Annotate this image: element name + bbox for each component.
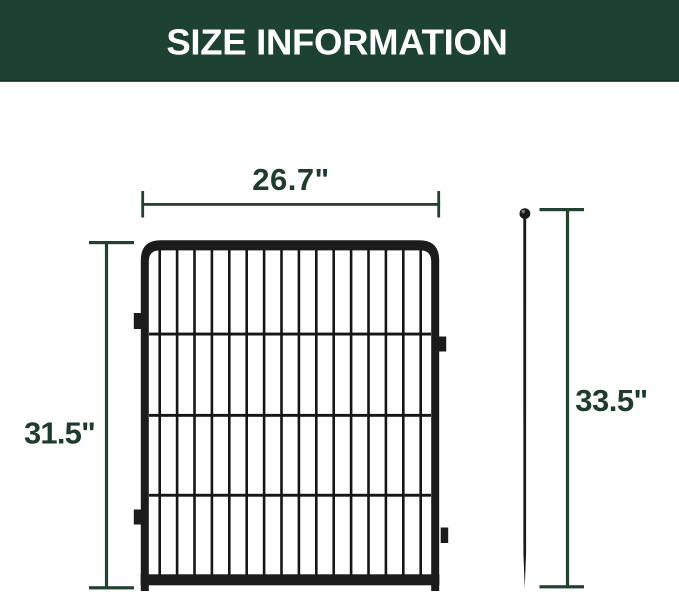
svg-text:26.7": 26.7" — [252, 162, 330, 197]
svg-text:SIZE INFORMATION: SIZE INFORMATION — [166, 22, 507, 63]
svg-text:33.5": 33.5" — [575, 383, 648, 418]
svg-text:31.5": 31.5" — [24, 416, 95, 451]
